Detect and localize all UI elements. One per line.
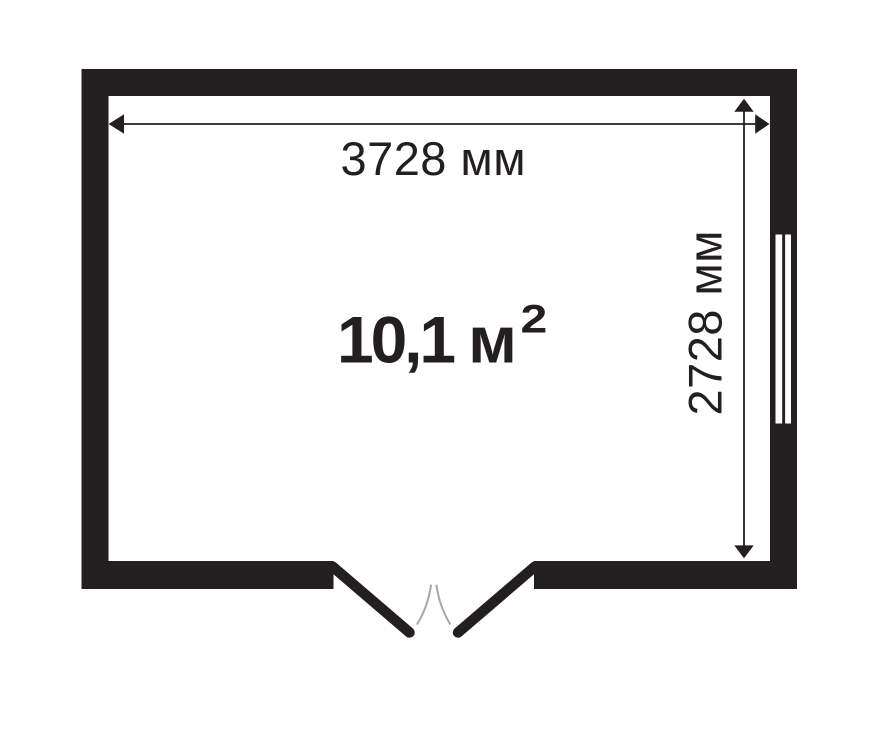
svg-text:2728 мм: 2728 мм: [679, 231, 732, 416]
svg-text:3728 мм: 3728 мм: [341, 132, 526, 185]
svg-text:2: 2: [521, 297, 548, 341]
svg-text:10,1 м: 10,1 м: [337, 303, 517, 377]
